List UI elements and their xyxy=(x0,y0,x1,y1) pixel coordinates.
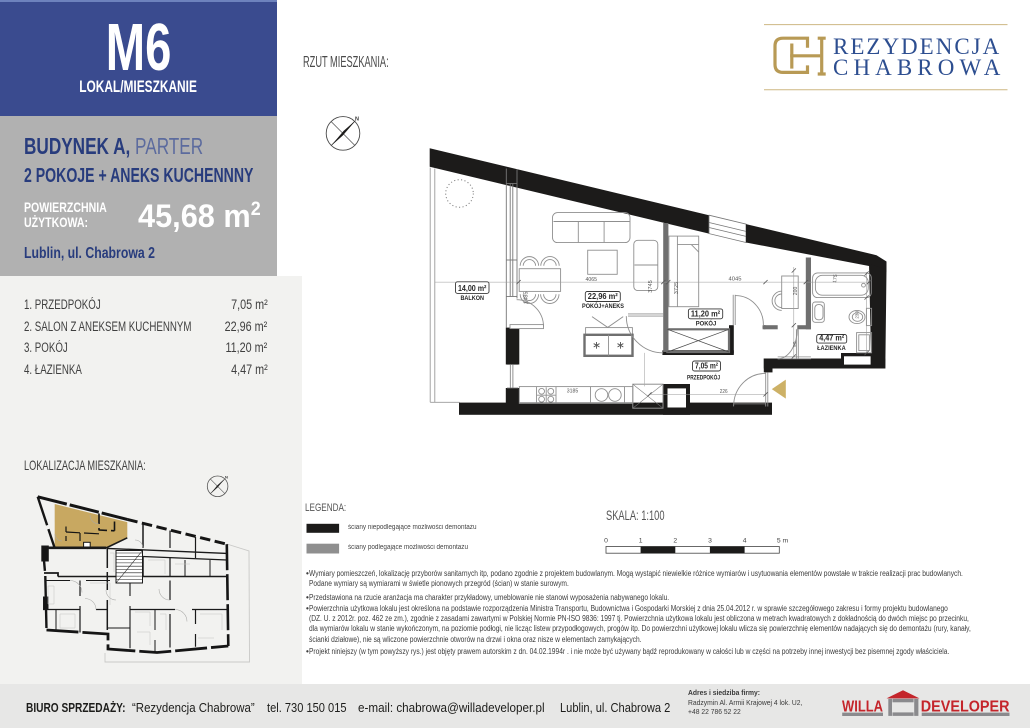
svg-text:22,96 m²: 22,96 m² xyxy=(588,292,618,301)
svg-text:POKÓJ: POKÓJ xyxy=(696,320,717,328)
svg-text:11,20 m²: 11,20 m² xyxy=(691,309,721,318)
svg-text:226: 226 xyxy=(720,389,728,395)
svg-text:3185: 3185 xyxy=(567,388,579,394)
svg-text:N: N xyxy=(355,117,359,123)
svg-text:4,47 m²: 4,47 m² xyxy=(819,334,844,343)
svg-text:4045: 4045 xyxy=(729,277,742,283)
svg-text:BALKON: BALKON xyxy=(460,295,484,302)
svg-text:3745: 3745 xyxy=(648,280,654,293)
svg-text:200: 200 xyxy=(793,286,799,295)
svg-text:4: 4 xyxy=(743,538,747,545)
svg-text:POKÓJ+ANEKS: POKÓJ+ANEKS xyxy=(582,302,624,310)
svg-text:90: 90 xyxy=(792,341,797,347)
svg-text:2: 2 xyxy=(673,538,677,545)
svg-text:N: N xyxy=(225,475,228,480)
svg-text:PRZEDPOKÓJ: PRZEDPOKÓJ xyxy=(687,373,720,381)
svg-text:0: 0 xyxy=(604,538,608,545)
svg-text:3: 3 xyxy=(708,538,712,545)
svg-text:175: 175 xyxy=(832,274,839,283)
svg-text:ŁAZIENKA: ŁAZIENKA xyxy=(817,345,846,352)
svg-text:1: 1 xyxy=(639,538,643,545)
svg-text:3725: 3725 xyxy=(674,282,680,295)
svg-text:7,05 m²: 7,05 m² xyxy=(695,362,718,371)
svg-text:1485: 1485 xyxy=(523,291,529,304)
svg-text:5 m: 5 m xyxy=(777,538,789,545)
svg-text:4065: 4065 xyxy=(586,277,598,283)
svg-text:230: 230 xyxy=(855,310,860,318)
svg-text:14,00 m²: 14,00 m² xyxy=(458,284,487,293)
